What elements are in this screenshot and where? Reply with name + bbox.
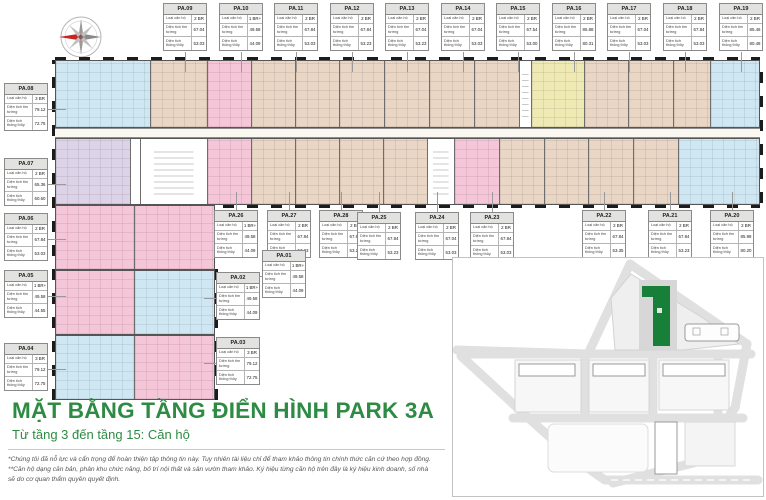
unit-card-title: PA.03 — [217, 338, 259, 349]
value-gross-area: 67.84 — [303, 24, 317, 36]
unit-card: PA.04 Loại căn hộ3 BR Diện tích tim tườn… — [4, 343, 48, 391]
label-unit-type: Loại căn hộ — [416, 224, 444, 232]
plan-unit — [252, 61, 296, 127]
label-unit-type: Loại căn hộ — [5, 95, 33, 103]
plan-unit — [384, 139, 428, 204]
plan-unit — [151, 61, 208, 127]
unit-card: PA.12 Loại căn hộ2 BR Diện tích tim tườn… — [330, 3, 374, 51]
value-net-area: 53.35 — [611, 244, 625, 256]
value-gross-area: 67.04 — [444, 233, 458, 245]
label-unit-type: Loại căn hộ — [215, 222, 243, 230]
label-gross-area: Diện tích tim tường — [220, 24, 248, 36]
unit-card: PA.22 Loại căn hộ2 BR Diện tích tim tườn… — [582, 210, 626, 258]
disclaimer-line: *Chúng tôi đã nỗ lực và cẩn trọng để hoà… — [8, 455, 444, 465]
label-gross-area: Diện tích tim tường — [442, 24, 470, 36]
value-gross-area: 67.84 — [359, 24, 373, 36]
label-net-area: Diện tích thông thủy — [358, 246, 386, 258]
label-gross-area: Diện tích tim tường — [5, 104, 33, 116]
plan-unit — [56, 139, 131, 204]
plan-left-wing-row — [55, 335, 215, 400]
plan-corridor — [55, 128, 760, 138]
value-net-area: 53.23 — [677, 244, 691, 256]
unit-card: PA.06 Loại căn hộ2 BR Diện tích tim tườn… — [4, 213, 48, 261]
unit-card-title: PA.12 — [331, 4, 373, 15]
label-net-area: Diện tích thông thủy — [220, 37, 248, 49]
unit-card: PA.16 Loại căn hộ2 BR Diện tích tim tườn… — [552, 3, 596, 51]
value-gross-area: 67.84 — [33, 234, 47, 246]
label-unit-type: Loại căn hộ — [5, 282, 33, 290]
value-net-area: 72.75 — [245, 371, 259, 383]
unit-card: PA.15 Loại căn hộ2 BR Diện tích tim tườn… — [496, 3, 540, 51]
label-net-area: Diện tích thông thủy — [442, 37, 470, 49]
value-gross-area: 79.12 — [245, 358, 259, 370]
value-gross-area: 67.84 — [296, 231, 310, 243]
label-gross-area: Diện tích tim tường — [5, 364, 33, 376]
unit-card-title: PA.15 — [497, 4, 539, 15]
label-net-area: Diện tích thông thủy — [711, 244, 739, 256]
label-unit-type: Loại căn hộ — [358, 224, 386, 232]
value-net-area: 80.48 — [748, 37, 762, 49]
value-gross-area: 85.98 — [739, 231, 753, 243]
label-gross-area: Diện tích tim tường — [553, 24, 581, 36]
value-unit-type: 2 BR — [611, 222, 625, 230]
value-unit-type: 2 BR — [303, 15, 317, 23]
label-net-area: Diện tích thông thủy — [263, 284, 291, 296]
unit-card-title: PA.14 — [442, 4, 484, 15]
plan-unit — [629, 61, 674, 127]
value-unit-type: 2 BR — [33, 225, 47, 233]
page-subtitle: Từ tầng 3 đến tầng 15: Căn hộ — [12, 427, 190, 442]
label-unit-type: Loại căn hộ — [5, 355, 33, 363]
unit-card-title: PA.24 — [416, 213, 458, 224]
unit-card-title: PA.21 — [649, 211, 691, 222]
value-net-area: 44.09 — [245, 306, 259, 318]
value-gross-area: 79.12 — [33, 364, 47, 376]
unit-card-title: PA.10 — [220, 4, 262, 15]
label-gross-area: Diện tích tim tường — [471, 233, 499, 245]
unit-card: PA.25 Loại căn hộ2 BR Diện tích tim tườn… — [357, 212, 401, 260]
label-gross-area: Diện tích tim tường — [416, 233, 444, 245]
label-gross-area: Diện tích tim tường — [331, 24, 359, 36]
unit-card-title: PA.13 — [386, 4, 428, 15]
value-net-area: 80.20 — [739, 244, 753, 256]
plan-unit — [589, 139, 634, 204]
value-unit-type: 2 BR — [692, 15, 706, 23]
value-net-area: 53.03 — [192, 37, 206, 49]
value-unit-type: 1 BR+ — [33, 282, 47, 290]
plan-unit — [56, 61, 151, 127]
value-unit-type: 2 BR — [444, 224, 458, 232]
plan-unit — [585, 61, 630, 127]
plan-unit — [475, 61, 520, 127]
unit-card: PA.26 Loại căn hộ1 BR+ Diện tích tim tườ… — [214, 210, 258, 258]
label-unit-type: Loại căn hộ — [442, 15, 470, 23]
plan-unit — [135, 336, 214, 399]
label-net-area: Diện tích thông thủy — [5, 377, 33, 389]
label-net-area: Diện tích thông thủy — [5, 117, 33, 129]
label-gross-area: Diện tích tim tường — [5, 179, 33, 191]
plan-core — [520, 61, 532, 127]
plan-unit — [56, 271, 135, 334]
plan-gap — [131, 139, 141, 204]
value-net-area: 44.09 — [291, 284, 305, 296]
plan-unit — [208, 61, 253, 127]
label-unit-type: Loại căn hộ — [164, 15, 192, 23]
value-gross-area: 49.58 — [248, 24, 262, 36]
unit-card-title: PA.06 — [5, 214, 47, 225]
value-net-area: 53.03 — [636, 37, 650, 49]
unit-card-title: PA.16 — [553, 4, 595, 15]
label-gross-area: Diện tích tim tường — [263, 271, 291, 283]
value-gross-area: 67.04 — [192, 24, 206, 36]
unit-card: PA.02 Loại căn hộ1 BR+ Diện tích tim tườ… — [216, 272, 260, 320]
label-gross-area: Diện tích tim tường — [275, 24, 303, 36]
value-unit-type: 2 BR — [636, 15, 650, 23]
value-gross-area: 67.84 — [386, 233, 400, 245]
unit-card: PA.17 Loại căn hộ2 BR Diện tích tim tườn… — [607, 3, 651, 51]
unit-card: PA.20 Loại căn hộ2 BR Diện tích tim tườn… — [710, 210, 754, 258]
value-gross-area: 67.84 — [611, 231, 625, 243]
value-unit-type: 3 BR — [33, 95, 47, 103]
label-unit-type: Loại căn hộ — [553, 15, 581, 23]
unit-card-title: PA.26 — [215, 211, 257, 222]
value-net-area: 72.75 — [33, 117, 47, 129]
label-unit-type: Loại căn hộ — [649, 222, 677, 230]
plan-unit — [634, 139, 679, 204]
label-gross-area: Diện tích tim tường — [711, 231, 739, 243]
label-gross-area: Diện tích tim tường — [358, 233, 386, 245]
disclaimer-text: *Chúng tôi đã nỗ lực và cẩn trọng để hoà… — [8, 455, 444, 485]
unit-card-title: PA.18 — [664, 4, 706, 15]
value-unit-type: 1 BR+ — [243, 222, 257, 230]
unit-card-title: PA.25 — [358, 213, 400, 224]
unit-card: PA.03 Loại căn hộ3 BR Diện tích tim tườn… — [216, 337, 260, 385]
label-unit-type: Loại căn hộ — [608, 15, 636, 23]
label-unit-type: Loại căn hộ — [275, 15, 303, 23]
value-net-area: 53.00 — [525, 37, 539, 49]
plan-unit — [430, 61, 475, 127]
label-net-area: Diện tích thông thủy — [386, 37, 414, 49]
label-gross-area: Diện tích tim tường — [583, 231, 611, 243]
value-gross-area: 49.58 — [245, 293, 259, 305]
label-net-area: Diện tích thông thủy — [5, 247, 33, 259]
unit-card-title: PA.07 — [5, 159, 47, 170]
unit-card-title: PA.11 — [275, 4, 317, 15]
label-gross-area: Diện tích tim tường — [649, 231, 677, 243]
plan-unit — [340, 139, 384, 204]
label-gross-area: Diện tích tim tường — [268, 231, 296, 243]
label-net-area: Diện tích thông thủy — [497, 37, 525, 49]
unit-card-title: PA.28 — [320, 211, 362, 222]
value-gross-area: 49.58 — [243, 231, 257, 243]
value-gross-area: 67.84 — [499, 233, 513, 245]
label-unit-type: Loại căn hộ — [331, 15, 359, 23]
disclaimer-line: sẽ do cơ quan thẩm quyền quyết định. — [8, 475, 444, 485]
value-net-area: 53.03 — [692, 37, 706, 49]
plan-unit — [208, 139, 253, 204]
unit-card: PA.21 Loại căn hộ2 BR Diện tích tim tườn… — [648, 210, 692, 258]
value-net-area: 44.09 — [243, 244, 257, 256]
value-net-area: 72.75 — [33, 377, 47, 389]
unit-card-title: PA.19 — [720, 4, 762, 15]
unit-card: PA.01 Loại căn hộ1 BR+ Diện tích tim tườ… — [262, 250, 306, 298]
label-unit-type: Loại căn hộ — [320, 222, 348, 230]
value-unit-type: 1 BR+ — [245, 284, 259, 292]
value-gross-area: 67.54 — [525, 24, 539, 36]
value-gross-area: 67.04 — [636, 24, 650, 36]
value-unit-type: 2 BR — [33, 170, 47, 178]
label-gross-area: Diện tích tim tường — [217, 293, 245, 305]
value-gross-area: 67.84 — [692, 24, 706, 36]
label-net-area: Diện tích thông thủy — [553, 37, 581, 49]
label-net-area: Diện tích thông thủy — [5, 304, 33, 316]
plan-unit — [340, 61, 385, 127]
plan-unit — [56, 206, 135, 269]
value-net-area: 53.03 — [470, 37, 484, 49]
unit-card: PA.24 Loại căn hộ2 BR Diện tích tim tườn… — [415, 212, 459, 260]
value-gross-area: 67.04 — [414, 24, 428, 36]
value-net-area: 53.23 — [414, 37, 428, 49]
unit-card-title: PA.27 — [268, 211, 310, 222]
unit-card: PA.10 Loại căn hộ1 BR+ Diện tích tim tườ… — [219, 3, 263, 51]
unit-card: PA.23 Loại căn hộ2 BR Diện tích tim tườn… — [470, 212, 514, 260]
label-unit-type: Loại căn hộ — [217, 284, 245, 292]
value-net-area: 53.03 — [33, 247, 47, 259]
value-unit-type: 2 BR — [581, 15, 595, 23]
unit-card: PA.07 Loại căn hộ2 BR Diện tích tim tườn… — [4, 158, 48, 206]
value-unit-type: 2 BR — [677, 222, 691, 230]
unit-card: PA.13 Loại căn hộ2 BR Diện tích tim tườn… — [385, 3, 429, 51]
value-gross-area: 65.36 — [33, 179, 47, 191]
label-unit-type: Loại căn hộ — [711, 222, 739, 230]
label-net-area: Diện tích thông thủy — [217, 306, 245, 318]
value-unit-type: 1 BR+ — [291, 262, 305, 270]
compass-rose-icon — [56, 12, 106, 62]
value-unit-type: 2 BR — [470, 15, 484, 23]
unit-card-title: PA.23 — [471, 213, 513, 224]
page-title: MẶT BẰNG TẦNG ĐIỂN HÌNH PARK 3A — [12, 398, 434, 424]
value-gross-area: 85.46 — [748, 24, 762, 36]
unit-card-title: PA.05 — [5, 271, 47, 282]
value-net-area: 53.23 — [359, 37, 373, 49]
value-unit-type: 3 BR — [245, 349, 259, 357]
label-unit-type: Loại căn hộ — [720, 15, 748, 23]
label-unit-type: Loại căn hộ — [583, 222, 611, 230]
unit-card-title: PA.08 — [5, 84, 47, 95]
unit-card-title: PA.02 — [217, 273, 259, 284]
unit-card: PA.18 Loại căn hộ2 BR Diện tích tim tườn… — [663, 3, 707, 51]
balcony-ticks — [760, 62, 763, 203]
unit-card: PA.11 Loại căn hộ2 BR Diện tích tim tườn… — [274, 3, 318, 51]
label-gross-area: Diện tích tim tường — [5, 234, 33, 246]
unit-card: PA.14 Loại căn hộ2 BR Diện tích tim tườn… — [441, 3, 485, 51]
label-gross-area: Diện tích tim tường — [720, 24, 748, 36]
label-unit-type: Loại căn hộ — [497, 15, 525, 23]
value-unit-type: 2 BR — [525, 15, 539, 23]
value-unit-type: 2 BR — [192, 15, 206, 23]
label-unit-type: Loại căn hộ — [217, 349, 245, 357]
brochure-page: PA.09 Loại căn hộ2 BR Diện tích tim tườn… — [0, 0, 766, 500]
plan-core-stairs — [141, 139, 208, 204]
value-unit-type: 2 BR — [739, 222, 753, 230]
label-net-area: Diện tích thông thủy — [215, 244, 243, 256]
value-net-area: 44.55 — [33, 304, 47, 316]
value-unit-type: 3 BR — [33, 355, 47, 363]
plan-unit — [56, 336, 135, 399]
label-unit-type: Loại căn hộ — [220, 15, 248, 23]
label-gross-area: Diện tích tim tường — [217, 358, 245, 370]
plan-unit — [545, 139, 590, 204]
plan-left-wing-row — [55, 205, 215, 270]
label-unit-type: Loại căn hộ — [471, 224, 499, 232]
value-gross-area: 79.12 — [33, 104, 47, 116]
label-unit-type: Loại căn hộ — [268, 222, 296, 230]
unit-card-title: PA.22 — [583, 211, 625, 222]
label-unit-type: Loại căn hộ — [5, 170, 33, 178]
unit-card-title: PA.09 — [164, 4, 206, 15]
label-unit-type: Loại căn hộ — [263, 262, 291, 270]
plan-core — [428, 139, 455, 204]
unit-card-title: PA.17 — [608, 4, 650, 15]
value-gross-area: 49.58 — [33, 291, 47, 303]
label-net-area: Diện tích thông thủy — [164, 37, 192, 49]
label-net-area: Diện tích thông thủy — [720, 37, 748, 49]
label-unit-type: Loại căn hộ — [386, 15, 414, 23]
value-gross-area: 85.88 — [581, 24, 595, 36]
label-net-area: Diện tích thông thủy — [416, 246, 444, 258]
label-gross-area: Diện tích tim tường — [320, 231, 348, 243]
plan-unit — [135, 271, 214, 334]
divider-line — [8, 449, 445, 450]
label-gross-area: Diện tích tim tường — [497, 24, 525, 36]
label-gross-area: Diện tích tim tường — [664, 24, 692, 36]
label-net-area: Diện tích thông thủy — [664, 37, 692, 49]
label-net-area: Diện tích thông thủy — [275, 37, 303, 49]
value-unit-type: 2 BR — [748, 15, 762, 23]
plan-unit — [455, 139, 500, 204]
value-net-area: 80.31 — [581, 37, 595, 49]
value-unit-type: 1 BR+ — [248, 15, 262, 23]
plan-unit — [711, 61, 759, 127]
value-net-area: 53.03 — [303, 37, 317, 49]
label-net-area: Diện tích thông thủy — [608, 37, 636, 49]
plan-unit — [135, 206, 214, 269]
plan-left-wing-row — [55, 270, 215, 335]
value-unit-type: 2 BR — [359, 15, 373, 23]
plan-bottom-wing — [55, 138, 760, 205]
label-gross-area: Diện tích tim tường — [386, 24, 414, 36]
value-net-area: 60.60 — [33, 192, 47, 204]
label-gross-area: Diện tích tim tường — [608, 24, 636, 36]
value-net-area: 44.09 — [248, 37, 262, 49]
value-gross-area: 67.04 — [470, 24, 484, 36]
unit-card: PA.19 Loại căn hộ2 BR Diện tích tim tườn… — [719, 3, 763, 51]
value-gross-area: 49.58 — [291, 271, 305, 283]
value-unit-type: 2 BR — [296, 222, 310, 230]
label-gross-area: Diện tích tim tường — [215, 231, 243, 243]
label-unit-type: Loại căn hộ — [664, 15, 692, 23]
label-net-area: Diện tích thông thủy — [331, 37, 359, 49]
unit-card-title: PA.20 — [711, 211, 753, 222]
plan-unit — [500, 139, 545, 204]
disclaimer-line: **Căn hộ dạng căn bản, phân khu chức năn… — [8, 465, 444, 475]
unit-card: PA.08 Loại căn hộ3 BR Diện tích tim tườn… — [4, 83, 48, 131]
value-unit-type: 2 BR — [386, 224, 400, 232]
label-net-area: Diện tích thông thủy — [649, 244, 677, 256]
unit-card: PA.09 Loại căn hộ2 BR Diện tích tim tườn… — [163, 3, 207, 51]
label-gross-area: Diện tích tim tường — [164, 24, 192, 36]
highlighted-building-park3a — [639, 280, 677, 350]
plan-unit — [296, 61, 340, 127]
plan-unit — [674, 61, 711, 127]
value-net-area: 53.23 — [386, 246, 400, 258]
unit-card-title: PA.01 — [263, 251, 305, 262]
plan-unit — [679, 139, 759, 204]
unit-card: PA.05 Loại căn hộ1 BR+ Diện tích tim tườ… — [4, 270, 48, 318]
site-map-drawing — [453, 258, 763, 496]
value-gross-area: 67.84 — [677, 231, 691, 243]
unit-card-title: PA.04 — [5, 344, 47, 355]
plan-unit — [296, 139, 340, 204]
site-locator-map — [452, 257, 764, 497]
label-net-area: Diện tích thông thủy — [5, 192, 33, 204]
top-card-row: PA.09 Loại căn hộ2 BR Diện tích tim tườn… — [163, 3, 763, 58]
label-unit-type: Loại căn hộ — [5, 225, 33, 233]
label-net-area: Diện tích thông thủy — [320, 244, 348, 256]
value-unit-type: 2 BR — [414, 15, 428, 23]
plan-unit — [532, 61, 585, 127]
label-net-area: Diện tích thông thủy — [217, 371, 245, 383]
label-net-area: Diện tích thông thủy — [583, 244, 611, 256]
value-unit-type: 2 BR — [499, 224, 513, 232]
label-gross-area: Diện tích tim tường — [5, 291, 33, 303]
